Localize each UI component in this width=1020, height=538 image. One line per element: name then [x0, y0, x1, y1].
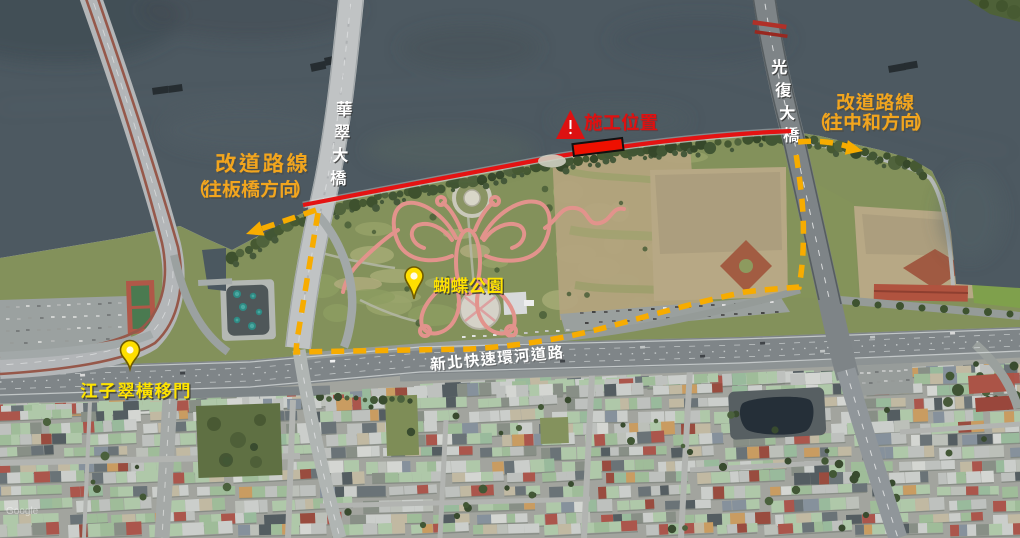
svg-text:Google: Google: [6, 506, 39, 517]
